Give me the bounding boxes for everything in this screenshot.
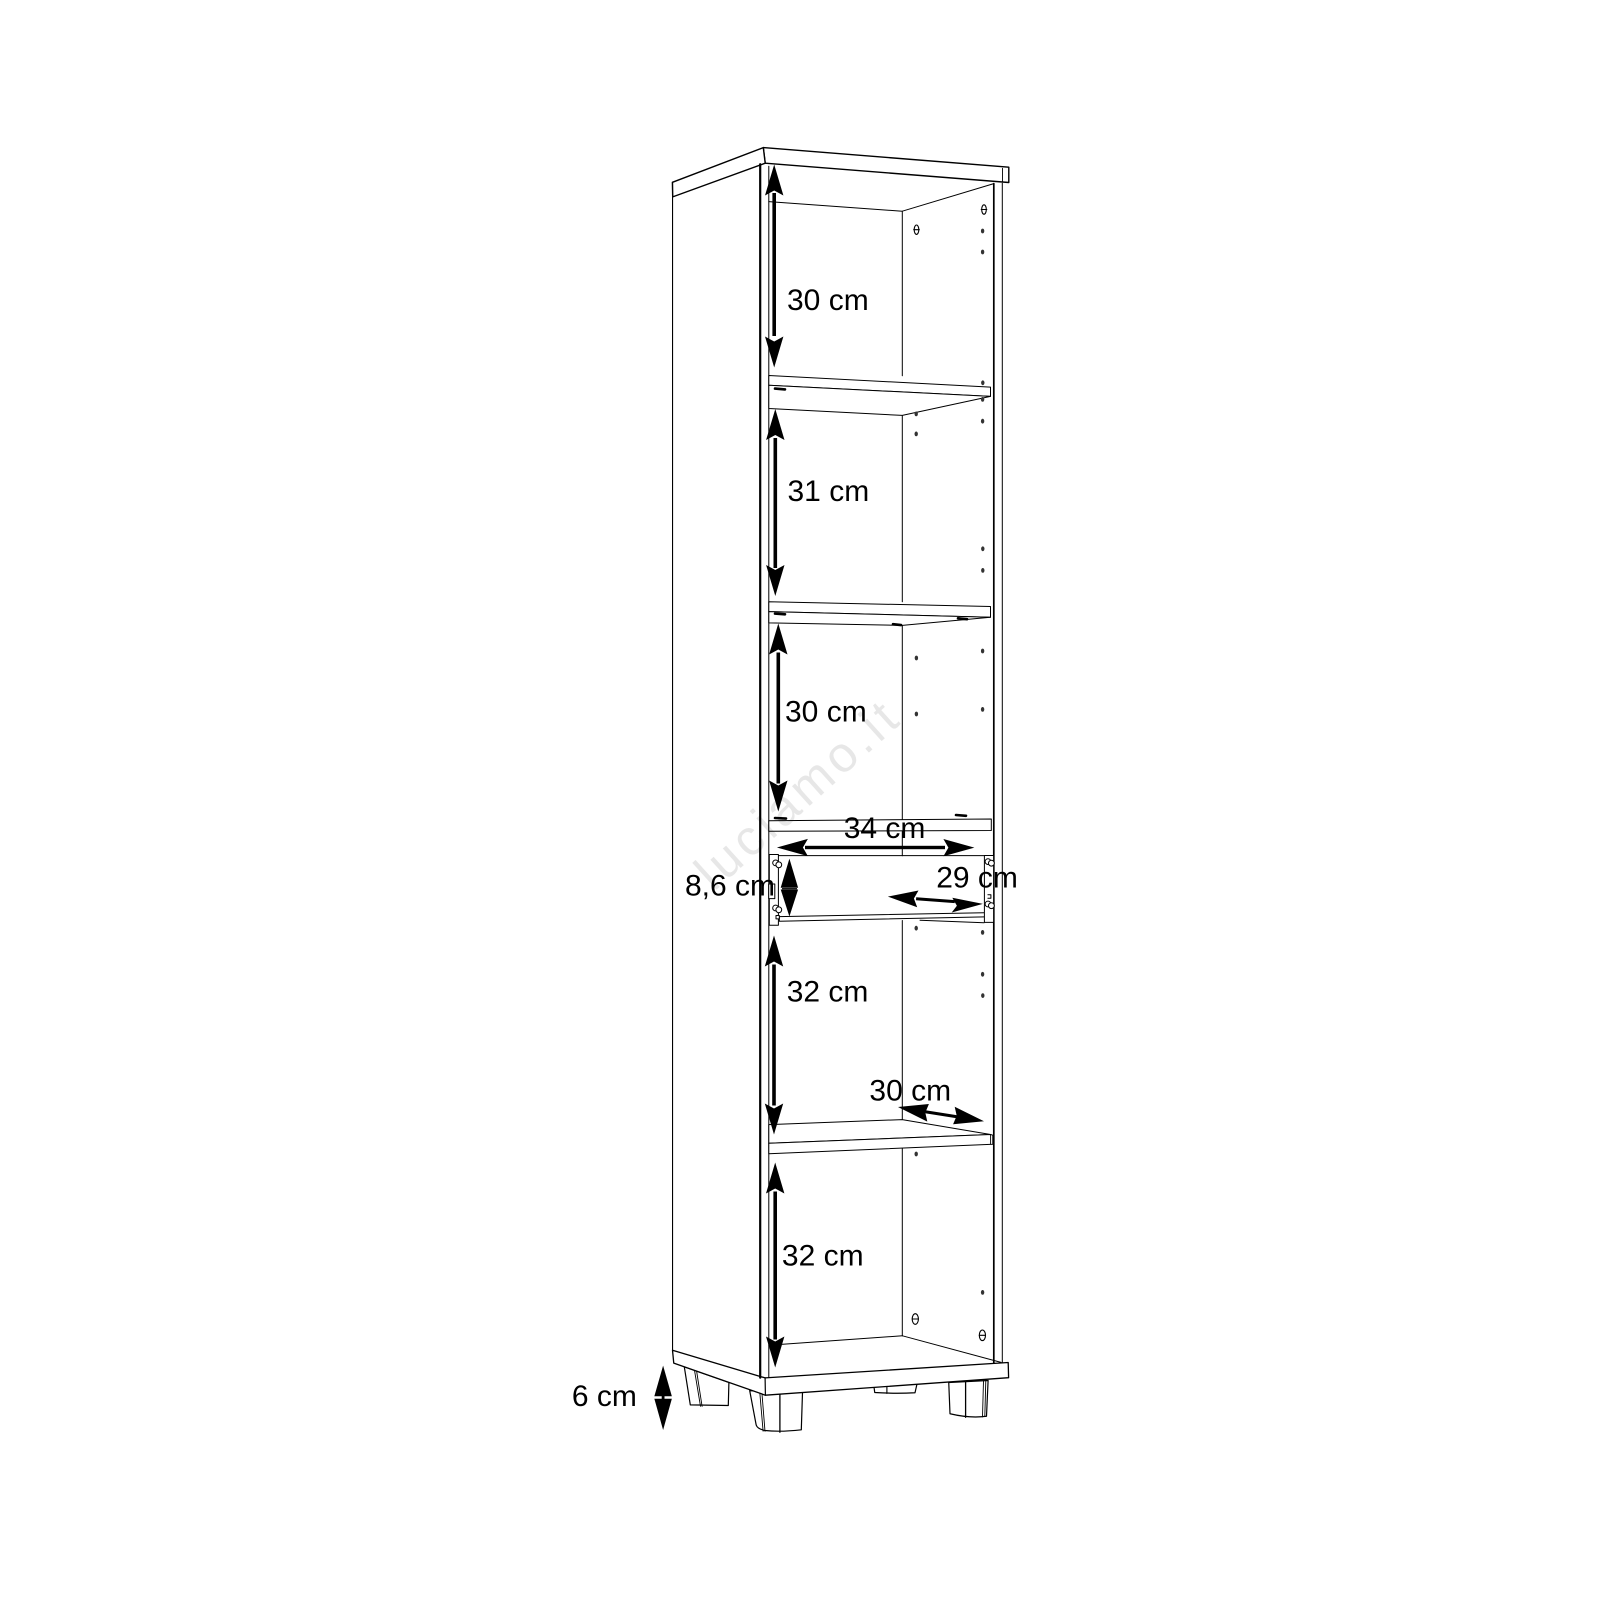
svg-text:29 cm: 29 cm: [936, 862, 1018, 895]
svg-text:30 cm: 30 cm: [787, 284, 869, 317]
svg-text:30 cm: 30 cm: [869, 1075, 951, 1108]
svg-text:31 cm: 31 cm: [788, 475, 870, 508]
svg-text:32 cm: 32 cm: [782, 1240, 864, 1273]
svg-text:8,6 cm: 8,6 cm: [685, 870, 775, 903]
svg-text:30 cm: 30 cm: [785, 696, 867, 729]
svg-text:6 cm: 6 cm: [572, 1380, 637, 1413]
svg-text:32 cm: 32 cm: [787, 976, 869, 1009]
svg-text:34 cm: 34 cm: [844, 812, 926, 845]
